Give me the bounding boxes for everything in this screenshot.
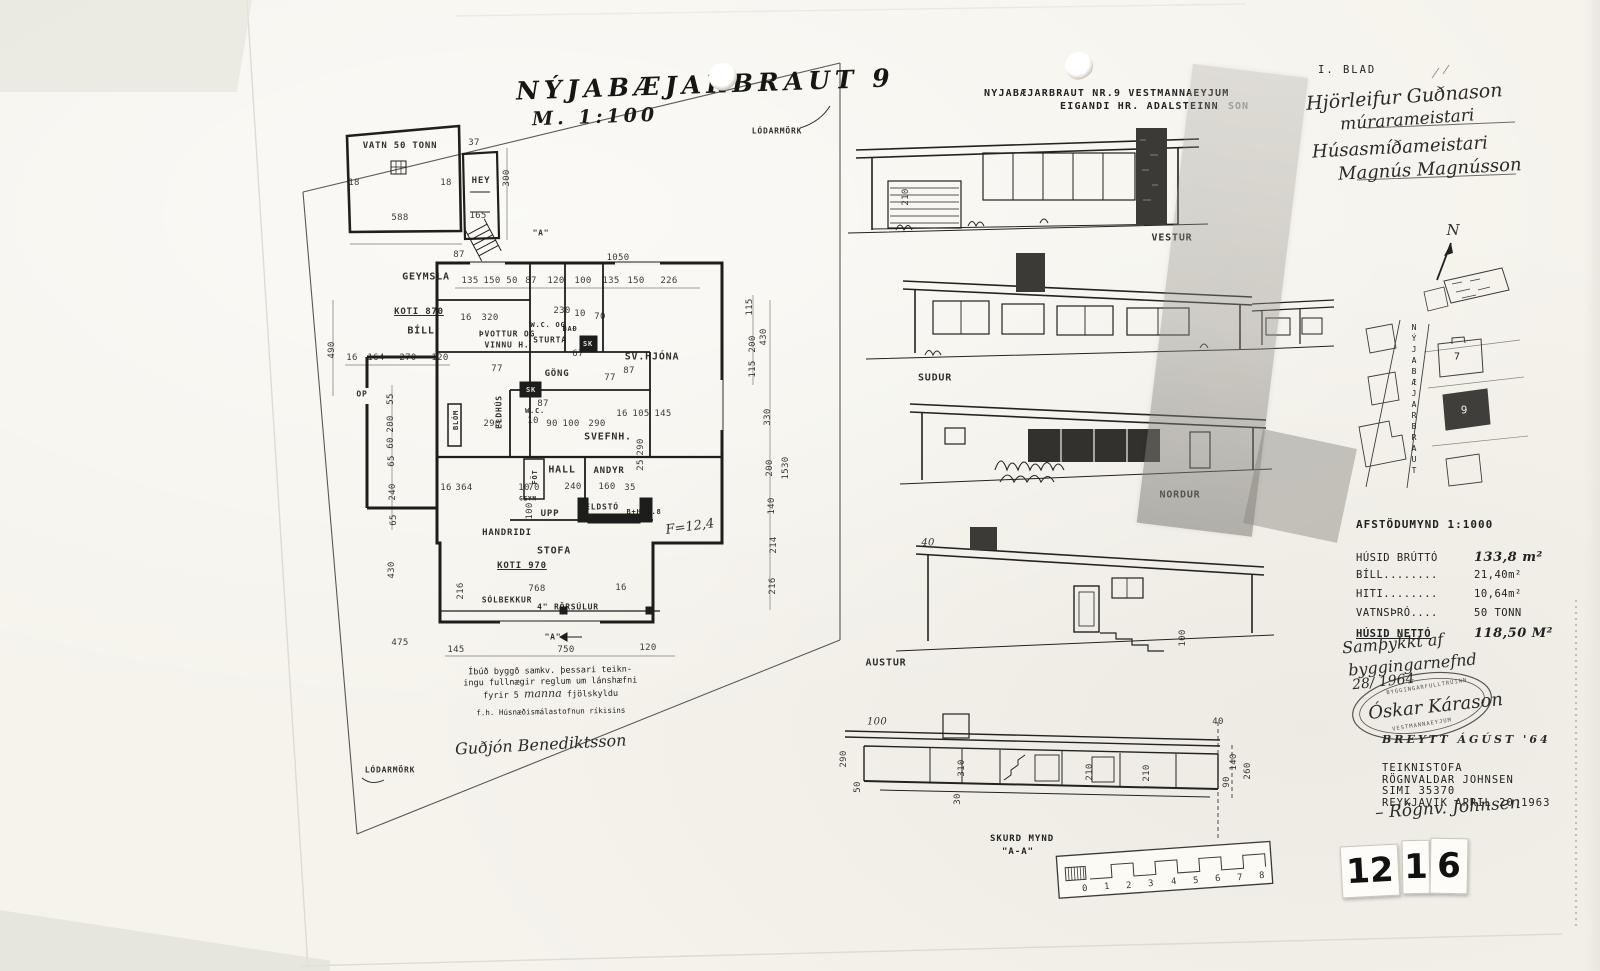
stat-label: BÍLL........ [1356,569,1474,581]
stairs-plan [465,219,501,261]
site-map [1359,268,1528,488]
hole-punch-right [1065,52,1093,80]
section-drawing [845,714,1232,838]
stat-value: 118,50 M² [1474,626,1553,641]
section-subtitle: "A-A" [1002,847,1034,857]
tape-strip-end [1243,429,1357,543]
stat-value: 133,8 m² [1474,550,1543,565]
hand-scale-note: M. 1:100 [532,104,659,130]
section-title: SKURD MYND [990,834,1054,844]
hole-punch-left [709,63,737,91]
stat-label: HÚSID BRÚTTÓ [1356,552,1474,564]
stat-row: HITI........ 10,64m² [1356,588,1576,607]
scan-edge-right [1584,0,1600,971]
sheet-number: I. BLAD [1318,64,1376,76]
elevation-vestur [848,128,1208,233]
floor-plan-walls [345,262,770,656]
stat-row: VATNSÞRÓ.... 50 TONN [1356,607,1576,626]
office-line: TEIKNISTOFA [1382,763,1550,775]
stat-row: BÍLL........ 21,40m² [1356,569,1576,588]
stat-label: HITI........ [1356,588,1474,600]
elevation-austur [896,527,1274,651]
area-stats-table: HÚSID BRÚTTÓ 133,8 m² BÍLL........ 21,40… [1356,550,1576,645]
stat-value: 50 TONN [1474,607,1522,619]
housing-authority-note: Íbúð byggð samkv. þessari teikn- ingu fu… [448,664,654,719]
scale-bar [1056,841,1272,898]
stat-value: 21,40m² [1474,569,1522,581]
number-card-6: 6 [1430,838,1469,895]
lot-boundary [303,63,840,834]
breytt-note: BREYTT ÁGÚST '64 [1382,733,1551,746]
stat-row: HÚSID BRÚTTÓ 133,8 m² [1356,550,1576,569]
stat-label: VATNSÞRÓ.... [1356,607,1474,619]
stat-value: 10,64m² [1474,588,1522,600]
note-hand-word: manna [524,687,562,701]
compass-north-arrow [1437,243,1453,280]
scanned-drawing-sheet: VATN 50 TONNHEYGEYMSLAKOTI 870BÍLLÞVOTTU… [0,0,1600,971]
scan-corner-shadow-topleft [0,0,252,92]
number-card-12: 12 [1340,844,1401,899]
number-card-1: 1 [1402,840,1431,894]
site-plan-title: AFSTÖDUMYND 1:1000 [1356,518,1493,531]
